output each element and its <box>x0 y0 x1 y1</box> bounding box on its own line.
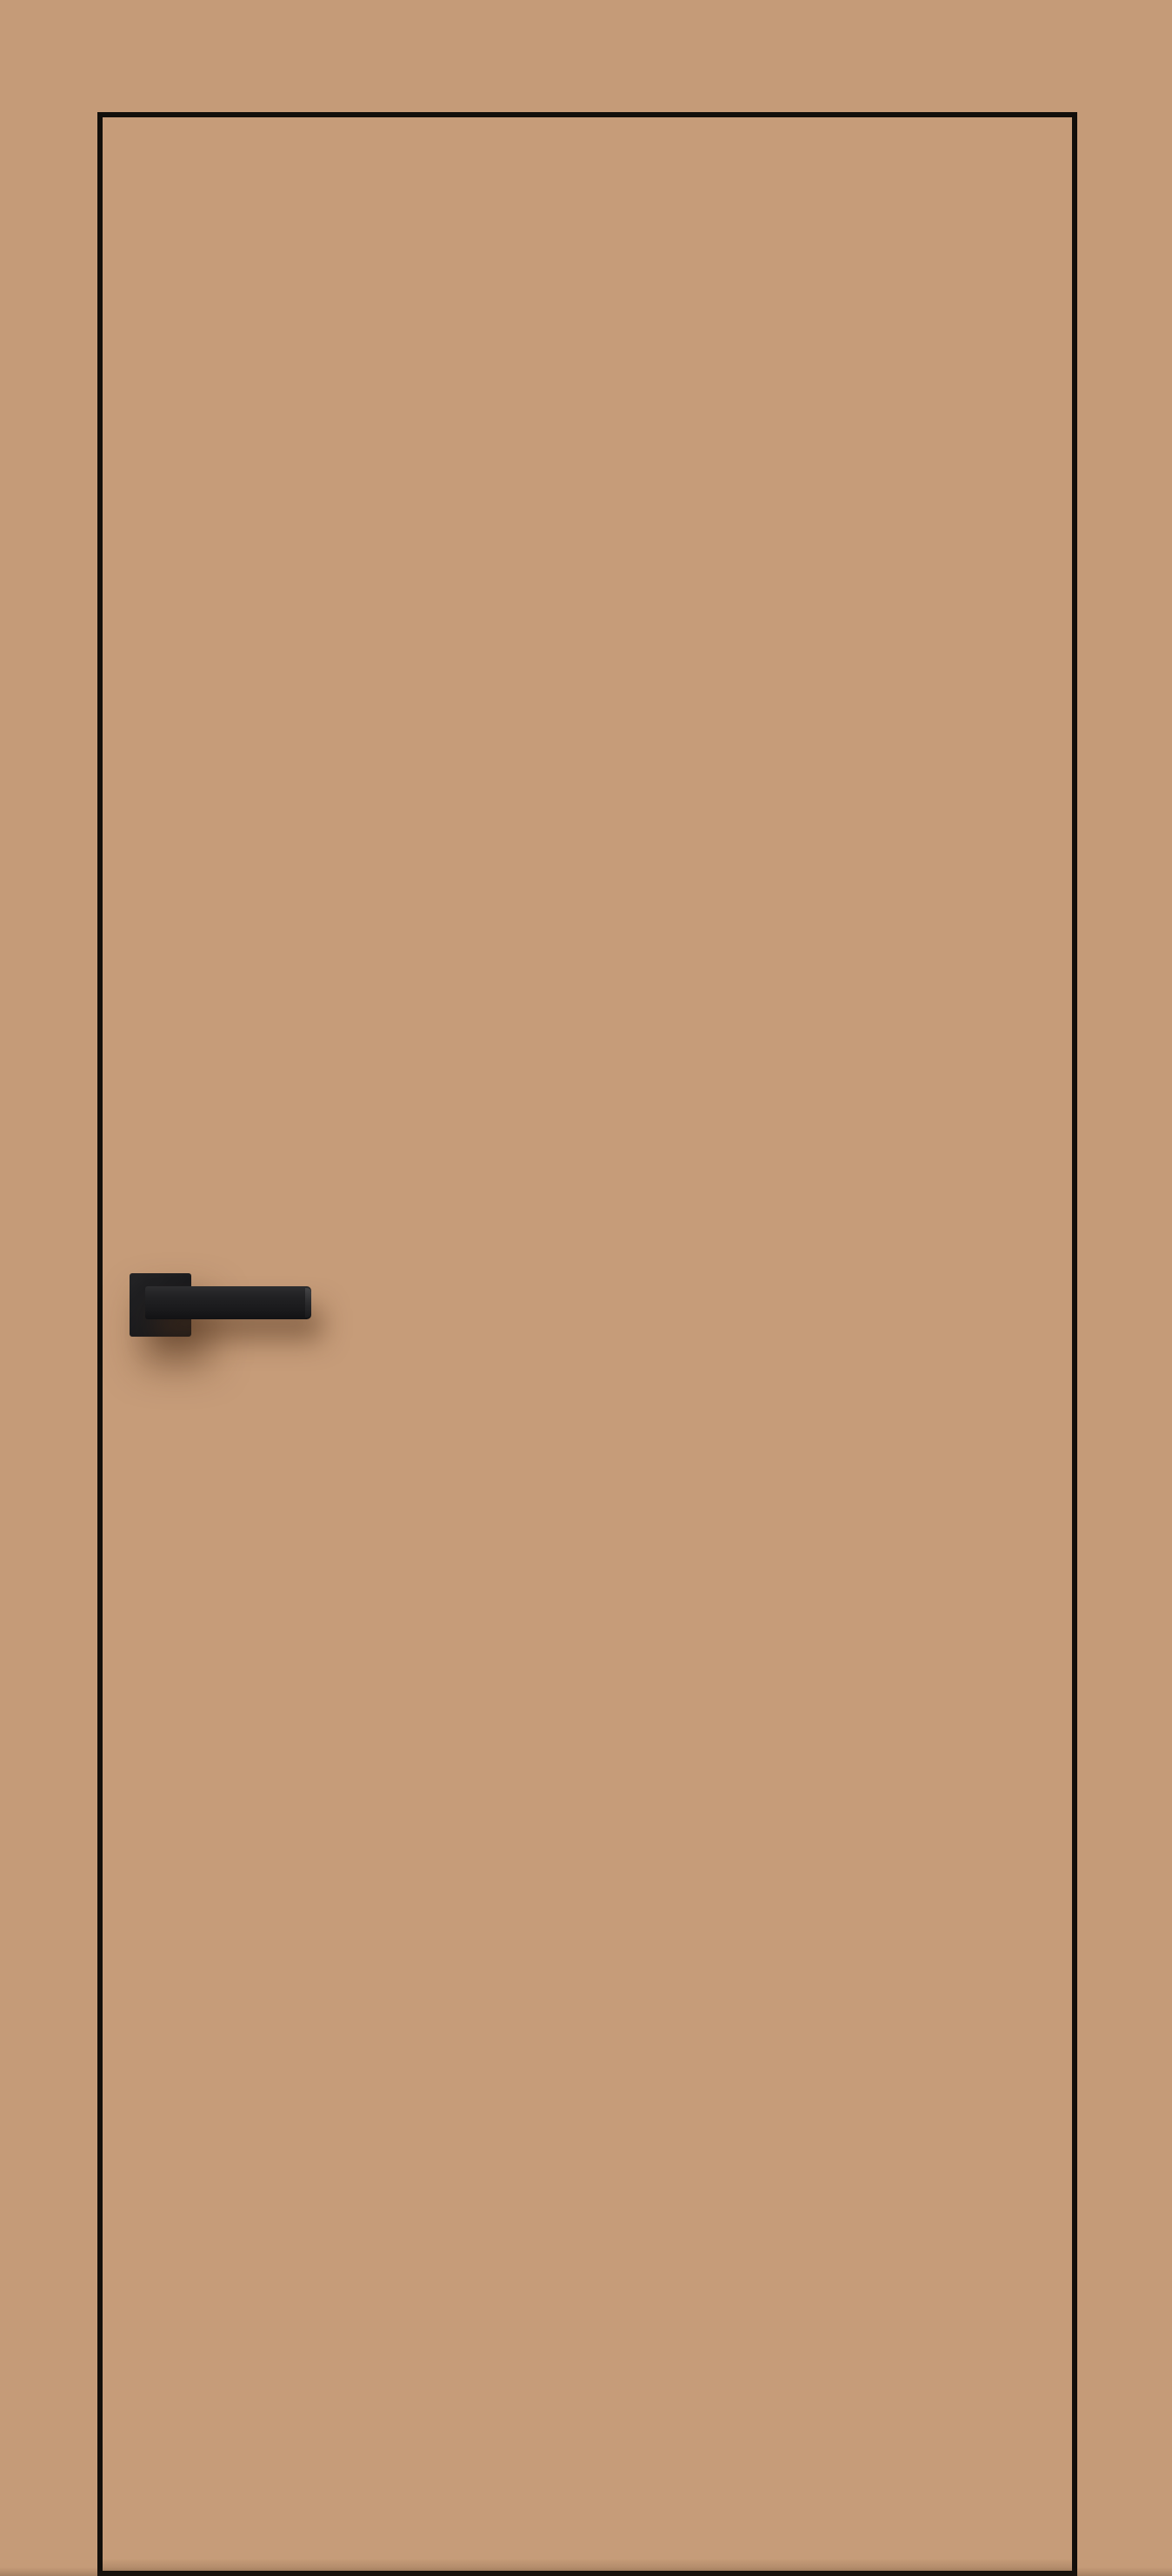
floor-shadow <box>0 2567 1172 2576</box>
door-leaf <box>97 112 1077 2576</box>
product-image-door <box>0 0 1172 2576</box>
handle-lever <box>145 1286 311 1319</box>
